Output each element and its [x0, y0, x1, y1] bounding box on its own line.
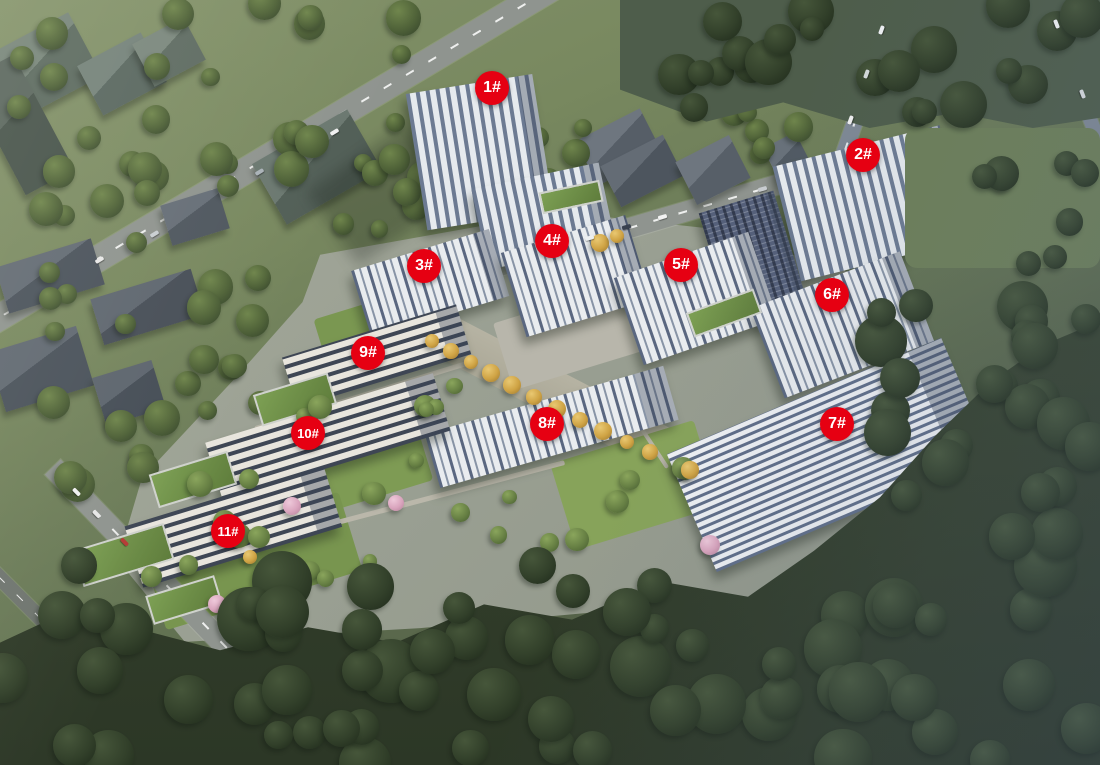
grass-clearing	[905, 128, 1100, 268]
tree	[867, 298, 896, 327]
autumn-tree	[526, 389, 541, 404]
tree	[245, 265, 271, 291]
tree	[201, 68, 219, 86]
tree	[410, 629, 455, 674]
tree	[556, 574, 590, 608]
tree	[620, 470, 640, 490]
tree	[175, 371, 201, 397]
tree	[891, 674, 938, 721]
tree	[38, 591, 86, 639]
tree	[323, 710, 360, 747]
building-marker-2[interactable]: 2#	[846, 138, 880, 172]
tree	[36, 17, 69, 50]
building-marker-5[interactable]: 5#	[664, 248, 698, 282]
building-marker-11[interactable]: 11#	[211, 514, 245, 548]
blossom-tree	[388, 495, 404, 511]
building-marker-10[interactable]: 10#	[291, 416, 325, 450]
tree	[77, 126, 101, 150]
tree	[53, 724, 96, 765]
tree	[972, 164, 997, 189]
tree	[295, 125, 329, 159]
tree	[164, 675, 213, 724]
tree	[880, 358, 920, 398]
tree	[126, 232, 147, 253]
tree	[77, 647, 123, 693]
tree	[217, 175, 239, 197]
tree	[61, 547, 98, 584]
tree	[43, 155, 76, 188]
tree	[451, 503, 470, 522]
tree	[200, 142, 234, 176]
tree	[573, 731, 612, 765]
tree	[134, 180, 160, 206]
building-marker-6[interactable]: 6#	[815, 278, 849, 312]
tree	[37, 386, 70, 419]
tree	[179, 555, 199, 575]
tree	[236, 304, 269, 337]
tree	[198, 401, 217, 420]
tree	[298, 5, 323, 30]
tree	[989, 513, 1036, 560]
tree	[144, 53, 170, 79]
tree	[764, 24, 795, 55]
tree	[1031, 508, 1083, 560]
building-marker-3[interactable]: 3#	[407, 249, 441, 283]
tree	[784, 112, 813, 141]
tree	[39, 262, 60, 283]
autumn-tree	[594, 422, 611, 439]
tree	[452, 730, 488, 765]
tree	[912, 99, 937, 124]
tree	[1071, 304, 1100, 334]
tree	[899, 289, 932, 322]
tree	[829, 662, 889, 722]
building-marker-4[interactable]: 4#	[535, 224, 569, 258]
tree	[1016, 251, 1041, 276]
tree	[878, 50, 920, 92]
tree	[54, 461, 87, 494]
tree	[105, 410, 137, 442]
tree	[264, 721, 292, 749]
tree	[371, 220, 388, 237]
tree	[293, 716, 326, 749]
tree	[347, 563, 394, 610]
tree	[144, 400, 180, 436]
tree	[502, 490, 516, 504]
tree	[222, 354, 246, 378]
building-marker-9[interactable]: 9#	[351, 336, 385, 370]
tree	[467, 668, 520, 721]
tree	[333, 213, 354, 234]
tree	[317, 570, 334, 587]
tree	[676, 629, 709, 662]
tree	[490, 526, 507, 543]
tree	[248, 526, 270, 548]
autumn-tree	[503, 376, 521, 394]
tree	[1021, 473, 1060, 512]
autumn-tree	[443, 343, 459, 359]
tree	[262, 665, 311, 714]
aerial-site-rendering: 1#2#3#4#5#6#7#8#9#10#11#	[0, 0, 1100, 765]
tree	[446, 378, 463, 395]
tree	[187, 471, 213, 497]
tree	[864, 409, 911, 456]
tree	[562, 139, 590, 167]
tree	[142, 105, 171, 134]
tree	[189, 345, 219, 375]
tree	[90, 184, 124, 218]
tree	[606, 490, 629, 513]
tree	[10, 46, 34, 70]
tree	[688, 60, 714, 86]
autumn-tree	[482, 364, 500, 382]
tree	[342, 650, 383, 691]
tree	[40, 63, 68, 91]
tree	[45, 322, 64, 341]
building-marker-1[interactable]: 1#	[475, 71, 509, 105]
tree	[162, 0, 194, 30]
tree	[7, 95, 31, 119]
tree	[505, 615, 554, 664]
autumn-tree	[572, 412, 588, 428]
tree	[1056, 208, 1083, 235]
autumn-tree	[642, 444, 657, 459]
tree	[419, 402, 434, 417]
building-marker-7[interactable]: 7#	[820, 407, 854, 441]
tree	[187, 290, 222, 325]
tree	[1071, 159, 1099, 187]
tree	[1003, 659, 1055, 711]
tree	[680, 93, 708, 121]
blossom-tree	[283, 497, 301, 515]
tree	[1012, 323, 1058, 369]
tree	[565, 528, 588, 551]
context-building	[160, 188, 230, 246]
tree	[996, 58, 1021, 83]
tree	[409, 453, 424, 468]
tree	[519, 547, 556, 584]
tree	[141, 566, 162, 587]
tree	[386, 0, 422, 36]
blossom-tree	[700, 535, 720, 555]
tree	[399, 671, 439, 711]
autumn-tree	[681, 461, 698, 478]
tree	[915, 603, 948, 636]
tree	[603, 588, 651, 636]
tree	[552, 630, 601, 679]
tree	[115, 314, 136, 335]
tree	[393, 178, 421, 206]
tree	[39, 287, 62, 310]
building-marker-8[interactable]: 8#	[530, 407, 564, 441]
tree	[362, 482, 386, 506]
tree	[762, 647, 796, 681]
tree	[976, 365, 1014, 403]
tree	[650, 685, 701, 736]
tree	[940, 81, 987, 128]
tree	[80, 598, 115, 633]
tree	[248, 0, 281, 20]
